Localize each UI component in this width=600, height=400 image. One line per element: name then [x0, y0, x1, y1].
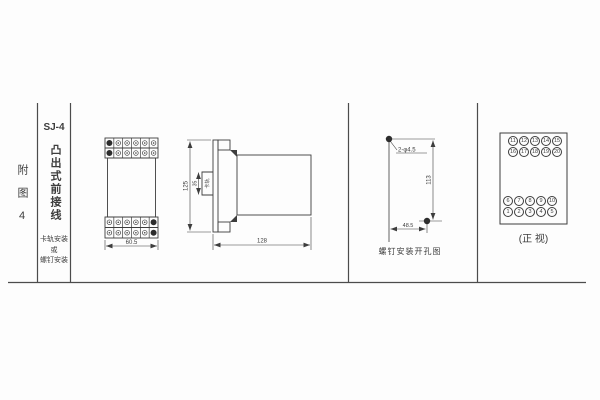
terminal-10: 10 — [547, 196, 557, 206]
terminal-1: 1 — [503, 207, 513, 217]
terminal-17: 17 — [519, 147, 529, 157]
front-width-dim: 60.5 — [126, 240, 138, 246]
mount-note-line2: 或 — [37, 245, 71, 255]
terminal-2: 2 — [514, 207, 524, 217]
side-view: 125 35 卡轨 128 — [184, 140, 312, 250]
terminal-face-caption: (正 视) — [500, 230, 567, 245]
terminal-11: 11 — [508, 136, 518, 146]
terminal-7: 7 — [514, 196, 524, 206]
mount-note-line1: 卡轨安装 — [37, 234, 71, 244]
rail-label: 卡轨 — [204, 178, 211, 188]
table-frame — [8, 103, 586, 283]
terminal-16: 16 — [508, 147, 518, 157]
terminal-19: 19 — [541, 147, 551, 157]
mount-note-line3: 螺钉安装 — [37, 255, 71, 265]
front-outline-view: 60.5 — [105, 138, 158, 250]
terminal-5: 5 — [547, 207, 557, 217]
terminal-14: 14 — [541, 136, 551, 146]
model-label: SJ-4 — [38, 122, 70, 133]
terminal-20: 20 — [552, 147, 562, 157]
terminal-12: 12 — [519, 136, 529, 146]
drill-diagram: 2-φ4.5 113 48.5 — [386, 136, 442, 242]
drill-diagram-caption: 螺钉安装开孔图 — [368, 246, 452, 257]
terminal-6: 6 — [503, 196, 513, 206]
wiring-style-label: 凸出式前接线 — [47, 144, 63, 222]
side-height-dim: 125 — [184, 180, 190, 191]
terminal-4: 4 — [536, 207, 546, 217]
terminal-18: 18 — [530, 147, 540, 157]
side-depth-dim: 128 — [257, 239, 268, 245]
terminal-13: 13 — [530, 136, 540, 146]
hole-spec-label: 2-φ4.5 — [398, 148, 416, 154]
terminal-15: 15 — [552, 136, 562, 146]
terminal-strip-cells — [106, 138, 156, 238]
rail-width-dim: 35 — [193, 181, 199, 187]
terminal-8: 8 — [525, 196, 535, 206]
drill-vertical-dim: 113 — [427, 175, 433, 185]
terminal-3: 3 — [525, 207, 535, 217]
drill-horizontal-dim: 48.5 — [403, 223, 414, 229]
figure-number: 附图4 — [14, 164, 30, 234]
manual-figure-page: 60.5 125 35 卡轨 — [0, 0, 600, 400]
terminal-9: 9 — [536, 196, 546, 206]
